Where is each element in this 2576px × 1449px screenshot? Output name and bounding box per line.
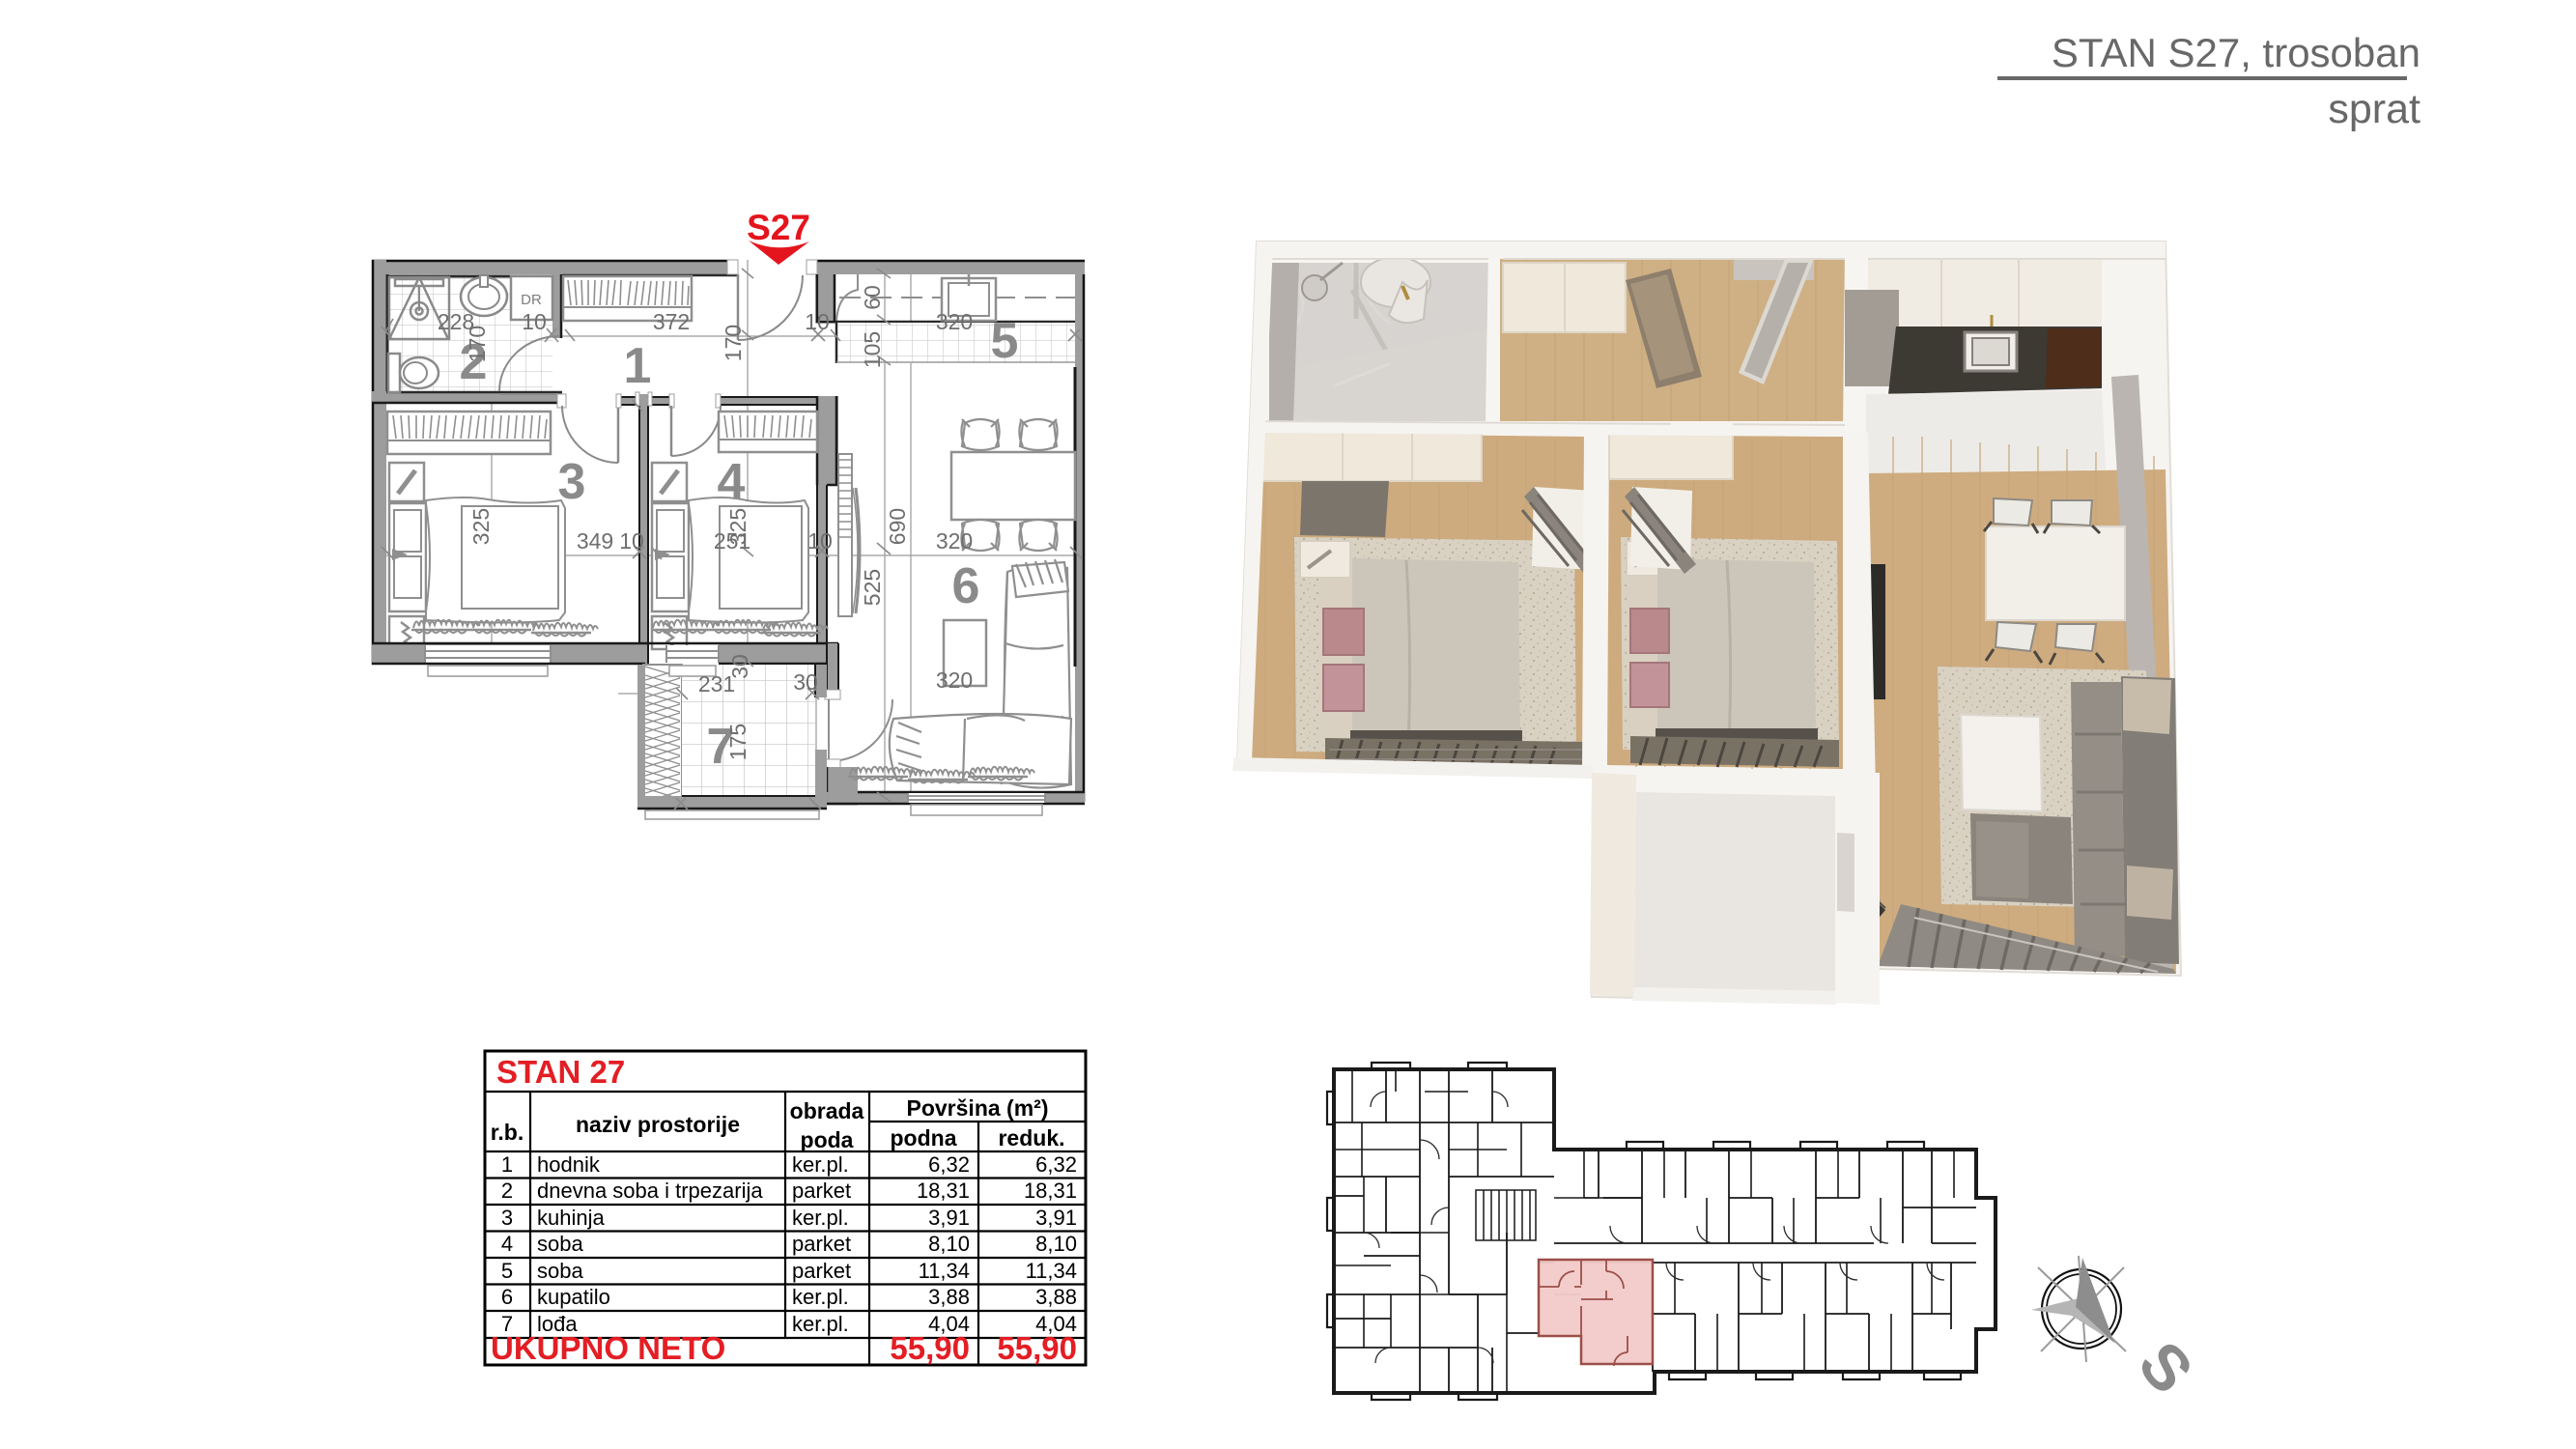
svg-text:55,90: 55,90 (997, 1330, 1077, 1366)
svg-text:525: 525 (860, 569, 885, 606)
svg-text:690: 690 (885, 508, 910, 545)
svg-text:UKUPNO NETO: UKUPNO NETO (491, 1330, 725, 1366)
svg-text:3: 3 (501, 1206, 513, 1230)
svg-text:r.b.: r.b. (491, 1120, 524, 1145)
svg-text:1: 1 (624, 338, 652, 394)
svg-text:S27: S27 (747, 208, 810, 247)
svg-text:sprat: sprat (2328, 86, 2420, 132)
svg-text:170: 170 (721, 325, 746, 361)
svg-text:DR: DR (521, 292, 542, 308)
svg-text:60: 60 (860, 285, 885, 310)
svg-text:10: 10 (522, 309, 547, 334)
svg-text:11,34: 11,34 (1026, 1259, 1077, 1283)
svg-text:STAN S27, trosoban: STAN S27, trosoban (2052, 30, 2420, 75)
svg-text:3,91: 3,91 (928, 1206, 970, 1230)
svg-text:3,91: 3,91 (1035, 1206, 1077, 1230)
svg-text:6: 6 (952, 558, 980, 614)
svg-text:podna: podna (891, 1125, 957, 1151)
svg-text:175: 175 (725, 724, 750, 760)
svg-text:11,34: 11,34 (919, 1259, 970, 1283)
svg-text:soba: soba (537, 1232, 583, 1256)
svg-text:ker.pl.: ker.pl. (792, 1206, 849, 1230)
svg-text:372: 372 (653, 309, 690, 334)
svg-text:30: 30 (793, 669, 818, 695)
svg-text:320: 320 (936, 668, 973, 693)
svg-text:reduk.: reduk. (998, 1125, 1064, 1151)
svg-text:6,32: 6,32 (1035, 1152, 1077, 1177)
svg-text:kupatilo: kupatilo (537, 1285, 610, 1309)
svg-text:4: 4 (501, 1232, 513, 1256)
svg-text:8,10: 8,10 (928, 1232, 970, 1256)
svg-text:349: 349 (577, 528, 613, 554)
svg-text:kuhinja: kuhinja (537, 1206, 605, 1230)
svg-text:2: 2 (501, 1179, 513, 1203)
svg-text:3,88: 3,88 (1035, 1285, 1077, 1309)
svg-text:10: 10 (807, 528, 833, 554)
svg-text:Površina (m²): Površina (m²) (907, 1095, 1049, 1121)
svg-text:320: 320 (936, 528, 973, 554)
svg-text:dnevna soba i trpezarija: dnevna soba i trpezarija (537, 1179, 763, 1203)
svg-text:1: 1 (501, 1152, 513, 1177)
svg-text:10: 10 (805, 309, 830, 334)
svg-text:30: 30 (727, 654, 752, 679)
svg-text:10: 10 (619, 528, 644, 554)
svg-text:naziv prostorije: naziv prostorije (576, 1112, 740, 1137)
svg-text:poda: poda (801, 1127, 854, 1152)
svg-text:5: 5 (991, 313, 1019, 369)
svg-text:obrada: obrada (790, 1098, 864, 1123)
svg-text:55,90: 55,90 (890, 1330, 970, 1366)
svg-text:ker.pl.: ker.pl. (792, 1312, 849, 1336)
svg-text:parket: parket (792, 1259, 851, 1283)
svg-text:3,88: 3,88 (928, 1285, 970, 1309)
svg-text:18,31: 18,31 (917, 1179, 970, 1203)
svg-text:parket: parket (792, 1232, 851, 1256)
svg-text:STAN 27: STAN 27 (496, 1054, 625, 1090)
svg-text:hodnik: hodnik (537, 1152, 601, 1177)
svg-text:ker.pl.: ker.pl. (792, 1285, 849, 1309)
svg-text:ker.pl.: ker.pl. (792, 1152, 849, 1177)
svg-text:5: 5 (501, 1259, 513, 1283)
svg-text:6: 6 (501, 1285, 513, 1309)
svg-text:8,10: 8,10 (1035, 1232, 1077, 1256)
svg-text:320: 320 (936, 309, 973, 334)
svg-text:105: 105 (860, 331, 885, 368)
svg-text:325: 325 (725, 508, 750, 545)
svg-text:325: 325 (468, 508, 494, 545)
svg-text:170: 170 (465, 326, 490, 362)
svg-text:6,32: 6,32 (928, 1152, 970, 1177)
svg-text:parket: parket (792, 1179, 851, 1203)
svg-text:18,31: 18,31 (1024, 1179, 1077, 1203)
svg-text:soba: soba (537, 1259, 583, 1283)
